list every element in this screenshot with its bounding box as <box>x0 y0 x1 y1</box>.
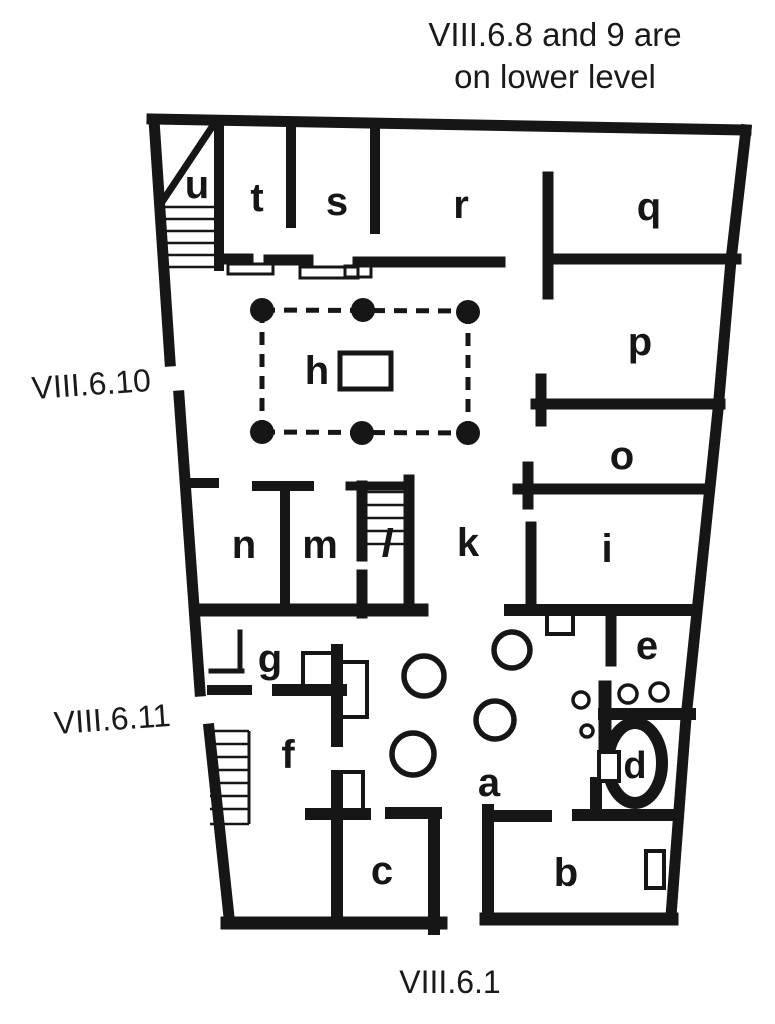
street-label-viii-6-10: VIII.6.10 <box>31 362 152 406</box>
dolium-circle <box>494 632 530 668</box>
basin-feature <box>547 613 573 634</box>
room-b-door <box>646 851 664 888</box>
dolium-circle <box>476 701 514 739</box>
room-label-o: o <box>610 434 634 478</box>
floor-plan-drawing: utsrqpoieknmlhgfabcdVIII.6.10VIII.6.11VI… <box>0 0 775 1024</box>
room-label-s: s <box>326 180 348 224</box>
room-label-f: f <box>281 733 295 777</box>
small-circle <box>581 725 593 737</box>
street-label-viii-6-11: VIII.6.11 <box>53 697 172 741</box>
wall <box>152 119 746 130</box>
room-label-r: r <box>453 183 469 227</box>
plan-note-line2: on lower level <box>395 56 715 98</box>
column-dot <box>250 298 274 322</box>
room-label-e: e <box>636 624 658 668</box>
small-circle <box>619 685 637 703</box>
room-label-q: q <box>637 185 661 229</box>
room-label-c: c <box>371 849 393 893</box>
plan-note-line1: VIII.6.8 and 9 are <box>395 14 715 56</box>
small-circle <box>650 683 668 701</box>
room-label-g: g <box>258 637 282 681</box>
column-dot <box>456 421 480 445</box>
room-label-m: m <box>302 523 338 567</box>
street-label-viii-6-1: VIII.6.1 <box>399 964 500 1000</box>
column-dot <box>250 420 274 444</box>
room-label-b: b <box>554 851 578 895</box>
column-dot <box>351 298 375 322</box>
plan-note: VIII.6.8 and 9 are on lower level <box>395 14 715 98</box>
room-label-u: u <box>185 163 209 207</box>
room-label-i: i <box>601 527 612 571</box>
room-label-t: t <box>250 176 263 220</box>
room-label-k: k <box>457 521 480 565</box>
outer-wall-right <box>671 130 746 916</box>
threshold-t <box>228 264 273 274</box>
room-label-l: l <box>381 522 393 566</box>
wall <box>154 120 170 361</box>
dolium-circle <box>404 656 444 696</box>
room-label-p: p <box>628 320 652 364</box>
room-label-h: h <box>305 349 329 393</box>
column-dot <box>350 421 374 445</box>
wall <box>179 396 200 691</box>
impluvium-basin <box>340 353 391 389</box>
dolium-circle <box>392 733 434 775</box>
room-g-feature-1 <box>303 653 333 687</box>
room-label-a: a <box>478 761 501 805</box>
room-label-d: d <box>623 745 646 787</box>
column-dot <box>456 300 480 324</box>
room-label-n: n <box>232 523 256 567</box>
room-d-door <box>599 752 619 781</box>
small-circle <box>573 692 589 708</box>
pompeii-floor-plan-page: VIII.6.8 and 9 are on lower level utsrqp… <box>0 0 775 1024</box>
